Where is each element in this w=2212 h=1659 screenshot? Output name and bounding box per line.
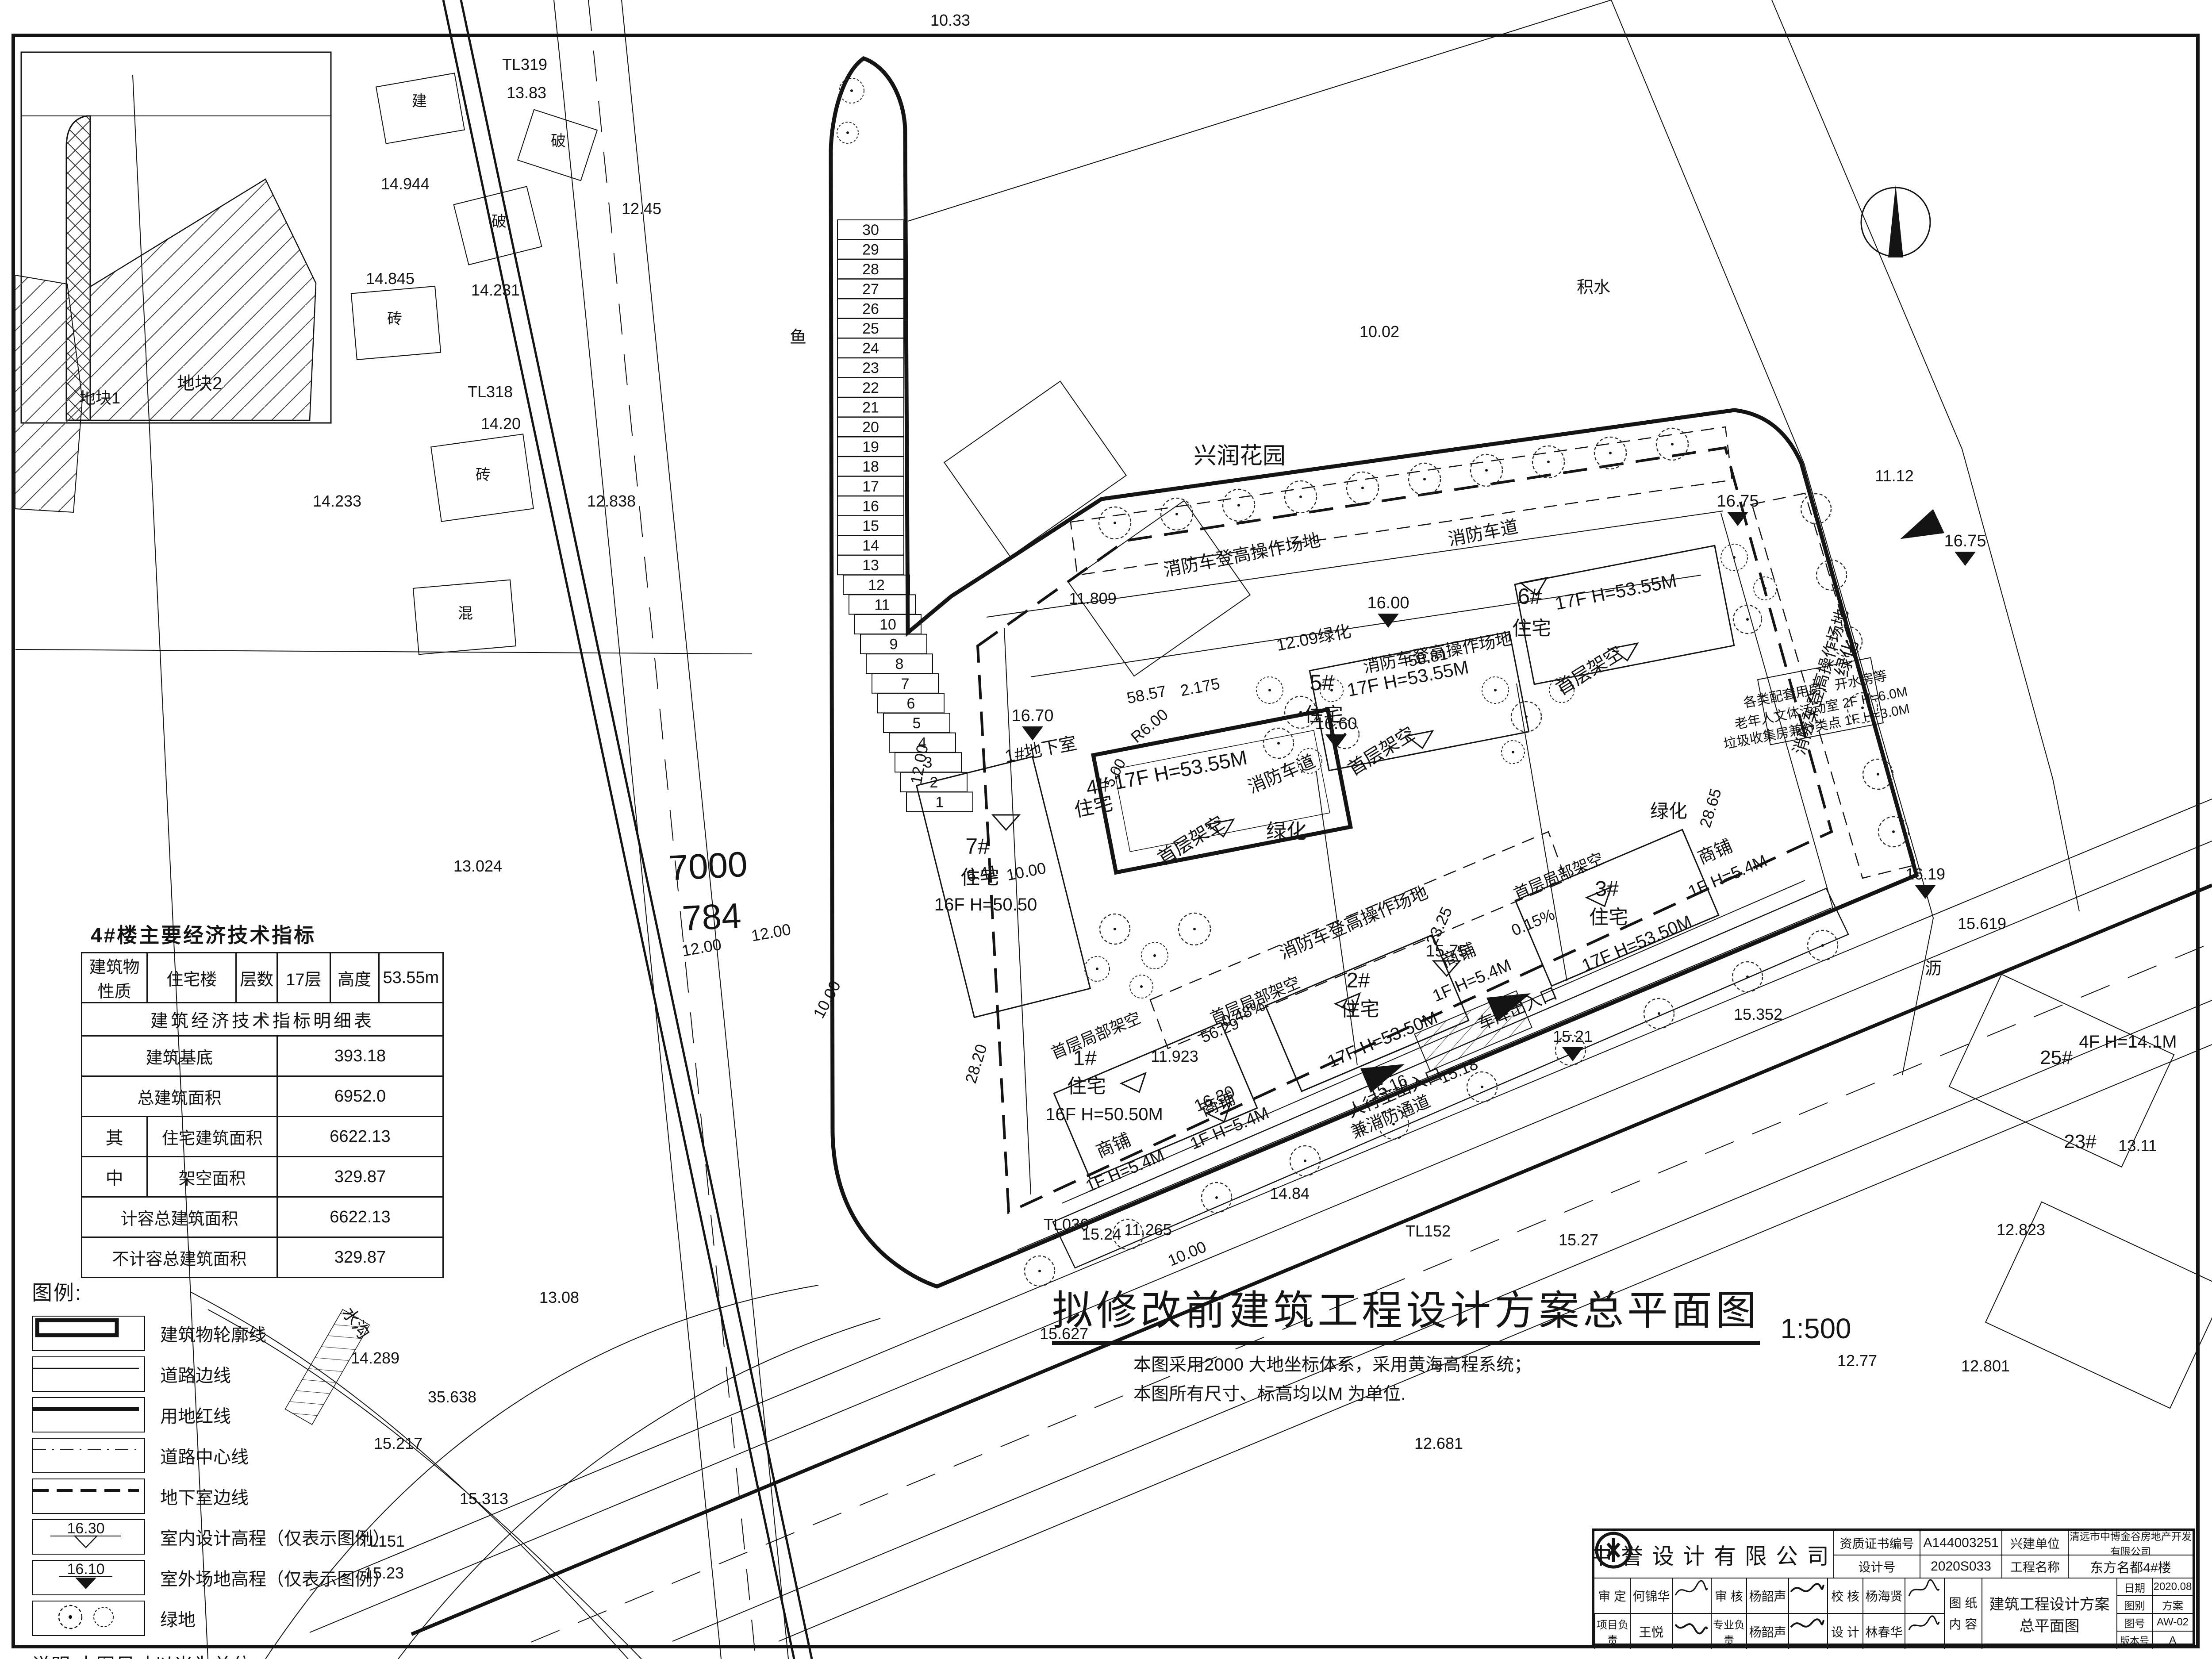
legend-item: 16.30 室内设计高程（仅表示图例） (32, 1517, 465, 1557)
svg-text:15.21: 15.21 (1553, 1027, 1593, 1045)
plan-label: 14.84 (1270, 1184, 1310, 1202)
plan-label: 15.21 (1553, 1027, 1593, 1061)
plan-label: 14.845 (366, 269, 415, 288)
basement-edge-swatch (32, 1479, 145, 1514)
plan-label: TL319 (502, 55, 547, 73)
legend-title: 图例: (32, 1277, 465, 1306)
existing-building (944, 381, 1126, 557)
pm-name: 王悦 (1630, 1613, 1672, 1649)
internal-roads (987, 427, 1916, 1250)
svg-text:16.19: 16.19 (1905, 865, 1945, 883)
ind-subheader: 建筑经济技术指标明细表 (82, 1003, 443, 1036)
building-outline-swatch (32, 1316, 145, 1351)
review-name: 杨韶声 (1746, 1578, 1788, 1613)
plan-label: 住宅 (1067, 1075, 1106, 1097)
parking-stall-number: 6 (907, 695, 915, 712)
existing-building (1068, 501, 1250, 676)
tree-center-dot (1746, 975, 1749, 978)
svg-text:16.30: 16.30 (67, 1520, 104, 1537)
plan-label: 15.27 (1559, 1231, 1598, 1249)
svg-text:23#: 23# (2064, 1131, 2097, 1152)
indicator-table: 建筑物性质 住宅楼 层数 17层 高度 53.55m 建筑经济技术指标明细表 建… (81, 952, 444, 1278)
outdoor-level-swatch: 16.10 (32, 1560, 145, 1595)
svg-text:12.77: 12.77 (1837, 1352, 1877, 1370)
tree-center-dot (1114, 522, 1116, 524)
svg-text:积水: 积水 (1577, 278, 1610, 297)
svg-text:14.20: 14.20 (481, 415, 521, 433)
tree-center-dot (1892, 830, 1895, 833)
svg-text:12.00: 12.00 (750, 920, 792, 945)
plan-label: 15.24 (1082, 1225, 1121, 1243)
plan-label: 13.83 (507, 84, 546, 102)
ind-row-value: 6622.13 (277, 1117, 443, 1157)
ind-row-label: 住宅建筑面积 (147, 1117, 277, 1157)
tree-center-dot (1153, 954, 1156, 957)
plan-label: 12.681 (1414, 1434, 1463, 1452)
plan-label: 住宅 (1072, 792, 1115, 821)
plan-label: 15.352 (1734, 1005, 1782, 1023)
plan-label: 13.11 (2118, 1137, 2157, 1155)
svg-text:TL318: TL318 (468, 383, 513, 401)
ind-row-value: 6952.0 (277, 1076, 443, 1117)
plan-label: 58.57 (1125, 682, 1167, 707)
plan-label: 4F H=14.1M (2079, 1032, 2177, 1052)
tree-center-dot (1746, 618, 1749, 621)
plan-label: 沥 (1925, 960, 1942, 978)
plan-label: 16F H=50.50 (934, 895, 1037, 914)
plan-label: 16.00 (1367, 594, 1409, 628)
content-value: 建筑工程设计方案总平面图 (1982, 1578, 2116, 1649)
svg-text:住宅: 住宅 (1067, 1075, 1106, 1097)
ind-h1: 建筑物性质 (82, 953, 147, 1003)
svg-text:混: 混 (458, 605, 473, 622)
tree-center-dot (1140, 985, 1143, 988)
plan-label: 消防车道 (1447, 517, 1520, 549)
svg-text:4F H=14.1M: 4F H=14.1M (2079, 1032, 2177, 1052)
parking-stall-number: 17 (862, 478, 879, 495)
svg-text:12.838: 12.838 (587, 492, 636, 510)
svg-text:10.02: 10.02 (1359, 323, 1399, 341)
plan-label: 6# (1517, 584, 1542, 609)
plan-label: 10.00 (810, 978, 844, 1022)
svg-text:消防车登高操作场地: 消防车登高操作场地 (1277, 883, 1431, 963)
svg-text:建: 建 (412, 93, 427, 110)
legend-note: 说明:本图尺寸以米为单位. (32, 1650, 465, 1659)
red-line-swatch (32, 1397, 145, 1432)
parking-stall-number: 10 (879, 616, 896, 633)
svg-text:16.00: 16.00 (1367, 594, 1409, 612)
type-value: 方案 (2152, 1595, 2193, 1613)
svg-text:7#: 7# (965, 834, 990, 859)
parking-stall-number: 23 (862, 360, 879, 376)
svg-text:消防车道: 消防车道 (1245, 752, 1318, 797)
plan-label: 12.823 (1997, 1221, 2045, 1239)
plan-label: 23# (2064, 1131, 2097, 1152)
svg-text:TL319: TL319 (502, 55, 547, 73)
plan-label: 16.75 (1944, 532, 1986, 566)
tree-center-dot (1547, 461, 1550, 463)
parking-stall-number: 18 (862, 458, 879, 475)
svg-text:2.175: 2.175 (1179, 674, 1221, 699)
svg-text:2#: 2# (1346, 969, 1370, 992)
date-value: 2020.08 (2152, 1578, 2193, 1595)
svg-text:14.845: 14.845 (366, 269, 415, 288)
svg-text:住宅: 住宅 (1072, 792, 1115, 821)
plan-label: 5# (1310, 670, 1334, 695)
ind-row-value: 393.18 (277, 1036, 443, 1076)
svg-text:11.809: 11.809 (1069, 589, 1116, 607)
plan-label: 1F H=5.4M (1686, 852, 1770, 902)
tree-center-dot (1481, 1086, 1483, 1088)
svg-text:首层架空: 首层架空 (1154, 812, 1228, 869)
svg-text:15.27: 15.27 (1559, 1231, 1598, 1249)
plan-note-2: 本图所有尺寸、标高均以M 为单位. (1133, 1379, 1406, 1405)
parking-stall-number: 16 (862, 498, 879, 515)
svg-text:破: 破 (551, 133, 566, 150)
parking-stall-number: 8 (895, 656, 904, 672)
legend-item: 16.10 室外场地高程（仅表示图例） (32, 1557, 465, 1598)
content-label: 图 纸 内 容 (1944, 1578, 1982, 1649)
tree-center-dot (1193, 928, 1196, 930)
tree-center-dot (1268, 689, 1271, 691)
tree-center-dot (1096, 968, 1098, 970)
ind-row-value: 6622.13 (277, 1197, 443, 1237)
ind-row-value: 329.87 (277, 1157, 443, 1197)
tree-center-dot (846, 131, 849, 134)
cert-label: 资质证书编号 (1833, 1531, 1920, 1555)
plan-label: 28.65 (1696, 786, 1725, 829)
pm-signature (1672, 1613, 1711, 1649)
review-label: 审 核 (1711, 1578, 1746, 1613)
svg-text:16F H=50.50M: 16F H=50.50M (1045, 1105, 1163, 1124)
lead-signature (1788, 1613, 1827, 1649)
tree-center-dot (1671, 443, 1674, 445)
tree-center-dot (1658, 1012, 1660, 1015)
plan-label: 住宅 (1589, 906, 1628, 928)
svg-text:15.619: 15.619 (1958, 914, 2006, 933)
design-no-label: 设计号 (1833, 1555, 1920, 1578)
plan-title-scale: 1:500 (1780, 1313, 1851, 1344)
version-value: A (2152, 1631, 2193, 1649)
svg-text:7000: 7000 (668, 844, 748, 887)
plan-label: 784 (681, 896, 742, 938)
legend-item: 绿地 (32, 1598, 465, 1639)
ind-h2: 层数 (236, 953, 277, 1003)
plan-label: 12.09绿化 (1275, 622, 1353, 655)
drawing-sheet: 地块1 地块2 (0, 0, 2212, 1659)
parking-stall-number: 2 (930, 774, 938, 791)
road-center-swatch (32, 1438, 145, 1473)
svg-text:6#: 6# (1517, 584, 1542, 609)
plan-label: 15.313 (460, 1490, 508, 1508)
svg-text:784: 784 (681, 896, 742, 938)
designer-label: 设 计 (1827, 1613, 1863, 1649)
tree-center-dot (1485, 469, 1488, 472)
svg-text:16.75: 16.75 (1944, 532, 1986, 550)
ind-v3: 53.55m (379, 953, 443, 1003)
svg-text:16.75: 16.75 (1717, 492, 1759, 511)
plan-label: 破 (492, 213, 507, 230)
svg-text:破: 破 (492, 213, 507, 230)
plan-title-text: 拟修改前建筑工程设计方案总平面图 (1052, 1278, 1760, 1345)
plan-label: 16.70 (1011, 707, 1053, 741)
plan-label: 23.25 (1422, 904, 1455, 948)
svg-text:12.00: 12.00 (680, 935, 723, 960)
legend-item: 道路边线 (32, 1354, 465, 1394)
ind-row-label: 建筑基底 (82, 1036, 277, 1076)
sheet-no-label: 图号 (2116, 1613, 2152, 1631)
plan-label: 10.33 (930, 11, 970, 29)
parking-stall-number: 12 (868, 577, 885, 594)
tree-center-dot (1299, 495, 1302, 498)
plan-label: 消防车道 (1245, 752, 1318, 797)
plan-label: 11.809 (1069, 589, 1116, 607)
svg-text:14.231: 14.231 (471, 281, 520, 299)
svg-text:绿化: 绿化 (1650, 801, 1687, 822)
ind-row-label: 架空面积 (147, 1157, 277, 1197)
plan-label: 绿化 (1266, 820, 1307, 843)
svg-text:16F H=50.50: 16F H=50.50 (934, 895, 1037, 914)
plan-label: 兴润花园 (1194, 443, 1286, 469)
ind-group: 中 (82, 1157, 147, 1197)
plan-label: 12.00 (907, 743, 932, 786)
plan-label: 绿化 (1650, 801, 1687, 822)
plan-label (993, 815, 1019, 830)
tree-center-dot (1304, 1160, 1306, 1162)
parcel2-label: 地块2 (177, 374, 222, 393)
plan-label: 16.19 (1905, 865, 1945, 899)
svg-text:住宅: 住宅 (1589, 906, 1628, 928)
svg-text:兴润花园: 兴润花园 (1194, 443, 1286, 469)
svg-text:11.265: 11.265 (1124, 1221, 1171, 1239)
check-name: 杨海贤 (1863, 1578, 1905, 1613)
tree-center-dot (1821, 944, 1824, 947)
plan-label: 12.00 (680, 935, 723, 960)
tree-center-dot (1830, 574, 1833, 576)
sheet-no-value: AW-02 (2152, 1613, 2193, 1631)
plan-label: 17F H=53.55M (1553, 570, 1678, 614)
svg-text:13.08: 13.08 (539, 1288, 579, 1306)
pm-label: 项目负责 (1594, 1613, 1630, 1649)
parking-stall-number: 11 (874, 596, 890, 613)
approve-name: 何锦华 (1630, 1578, 1672, 1613)
tree-center-dot (1175, 513, 1178, 515)
ind-v1: 住宅楼 (147, 953, 236, 1003)
plan-label: 砖 (476, 467, 491, 484)
plan-label: 14.944 (381, 175, 430, 193)
plan-label: 1#地下室 (1003, 733, 1079, 767)
company-logo-icon (1594, 1531, 1632, 1569)
plan-label: 16.60 (1315, 714, 1357, 749)
tree-center-dot (1299, 711, 1302, 714)
type-label: 图别 (2116, 1595, 2152, 1613)
parking-stall-number: 14 (862, 538, 879, 554)
plan-label: 0.15% (1509, 905, 1557, 940)
parking-stall-number: 24 (862, 340, 879, 357)
svg-text:23.25: 23.25 (1422, 904, 1455, 948)
parking-stall-number: 15 (862, 518, 879, 534)
ind-row-label: 总建筑面积 (82, 1076, 277, 1117)
date-label: 日期 (2116, 1578, 2152, 1595)
tree-center-dot (1609, 452, 1612, 454)
svg-text:14.944: 14.944 (381, 175, 430, 193)
indicator-table-title: 4#楼主要经济技术指标 (91, 919, 316, 949)
tree-center-dot (1764, 587, 1767, 590)
ind-row-label: 不计容总建筑面积 (82, 1237, 277, 1278)
svg-text:砖: 砖 (476, 467, 491, 484)
svg-text:0.15%: 0.15% (1509, 905, 1557, 940)
svg-text:砖: 砖 (387, 311, 402, 327)
plan-label: 14.233 (313, 492, 361, 510)
legend-item: 建筑物轮廓线 (32, 1313, 465, 1354)
cert-value: A144003251 (1920, 1531, 2001, 1555)
tree-center-dot (1512, 751, 1514, 753)
svg-text:15.313: 15.313 (460, 1490, 508, 1508)
parking-stall-number: 7 (901, 676, 910, 692)
check-signature (1905, 1578, 1944, 1613)
svg-text:沥: 沥 (1925, 960, 1942, 978)
plan-label: TL152 (1406, 1222, 1451, 1240)
building-6 (1515, 545, 1734, 684)
svg-text:消防车道: 消防车道 (1447, 517, 1520, 549)
plan-label: 11.12 (1875, 467, 1913, 485)
plan-label: 28.20 (961, 1042, 991, 1085)
indoor-level-swatch: 16.30 (32, 1519, 145, 1555)
svg-text:13.11: 13.11 (2118, 1137, 2157, 1155)
parking-stall-number: 20 (862, 419, 879, 436)
parking-stall-number: 1 (936, 794, 944, 810)
plan-label: 10.00 (1165, 1237, 1209, 1270)
parking-stall-number: 26 (862, 300, 879, 317)
tree-center-dot (1215, 1196, 1218, 1199)
svg-text:17F H=53.55M: 17F H=53.55M (1553, 570, 1678, 614)
plan-label: 2# (1346, 969, 1370, 992)
tree-center-dot (1237, 504, 1240, 507)
plan-label: 14.20 (481, 415, 521, 433)
plan-label: 12.00 (750, 920, 792, 945)
tree-center-dot (1494, 689, 1497, 691)
svg-text:12.823: 12.823 (1997, 1221, 2045, 1239)
svg-text:住宅: 住宅 (1512, 618, 1551, 639)
tree-center-dot (1361, 487, 1364, 489)
plan-label: 13.08 (539, 1288, 579, 1306)
svg-text:鱼: 鱼 (790, 328, 806, 347)
svg-text:16.10: 16.10 (67, 1561, 104, 1578)
plan-label (1121, 1073, 1152, 1097)
svg-text:28.65: 28.65 (1696, 786, 1725, 829)
plan-label: 7# (965, 834, 990, 859)
svg-text:58.57: 58.57 (1125, 682, 1167, 707)
parking-stall-number: 25 (862, 320, 879, 337)
road-edge-swatch (32, 1356, 145, 1392)
legend: 图例: 建筑物轮廓线 道路边线 用地红线 道路中心线 地下室边线 (32, 1277, 465, 1659)
plan-label: 10.00 (1005, 859, 1047, 884)
ind-row-value: 329.87 (277, 1237, 443, 1278)
plan-label: 11.923 (1151, 1047, 1198, 1065)
svg-text:14.233: 14.233 (313, 492, 361, 510)
plan-label: 12.77 (1837, 1352, 1877, 1370)
parking-stall-number: 22 (862, 380, 879, 396)
svg-text:12.00: 12.00 (907, 743, 932, 786)
svg-text:11.12: 11.12 (1875, 467, 1913, 485)
ind-row-label: 计容总建筑面积 (82, 1197, 277, 1237)
svg-text:12.681: 12.681 (1414, 1434, 1463, 1452)
svg-text:12.801: 12.801 (1961, 1357, 2010, 1375)
ind-v2: 17层 (277, 953, 330, 1003)
green-swatch (32, 1601, 145, 1636)
parking-stall-number: 9 (890, 636, 898, 653)
svg-text:16.60: 16.60 (1315, 714, 1357, 733)
plan-label: 25# (2040, 1047, 2073, 1068)
svg-text:15.352: 15.352 (1734, 1005, 1782, 1023)
parcel1-label: 地块1 (80, 389, 120, 407)
svg-text:15.24: 15.24 (1082, 1225, 1121, 1243)
tree-center-dot (1038, 1270, 1041, 1272)
design-no-value: 2020S033 (1920, 1555, 2001, 1578)
tree-center-dot (1815, 507, 1817, 510)
parking-stall-number: 28 (862, 261, 879, 278)
client-value: 清远市中博金谷房地产开发有限公司 (2068, 1531, 2193, 1555)
parking-stall-number: 5 (913, 715, 921, 732)
buildings (351, 73, 2212, 1408)
svg-text:10.00: 10.00 (810, 978, 844, 1022)
svg-text:13.024: 13.024 (453, 857, 502, 875)
svg-text:商铺: 商铺 (1695, 836, 1736, 868)
plan-label: 10.02 (1359, 323, 1399, 341)
legend-item: 道路中心线 (32, 1435, 465, 1476)
svg-text:12.09绿化: 12.09绿化 (1275, 622, 1353, 655)
plan-label: 破 (551, 133, 566, 150)
plan-label: 2.175 (1179, 674, 1221, 699)
plan-note-1: 本图采用2000 大地坐标体系，采用黄海高程系统； (1133, 1350, 1532, 1376)
plan-label: 商铺 (1695, 836, 1736, 868)
plan-label: 7000 (668, 844, 748, 887)
svg-text:14.84: 14.84 (1270, 1184, 1310, 1202)
parking-stall-number: 13 (862, 557, 879, 574)
project-label: 工程名称 (2001, 1555, 2068, 1578)
title-block: 中誉设计有限公司 资质证书编号 设计号 A144003251 2020S033 … (1592, 1528, 2195, 1646)
plan-label: 15.619 (1958, 914, 2006, 933)
plan-label: 11.265 (1124, 1221, 1171, 1239)
plan-label: 砖 (387, 311, 402, 327)
svg-text:5#: 5# (1310, 670, 1334, 695)
plan-label: TL318 (468, 383, 513, 401)
tree-center-dot (1733, 556, 1736, 559)
svg-text:10.00: 10.00 (1165, 1237, 1209, 1270)
legend-item: 用地红线 (32, 1394, 465, 1435)
svg-text:11.923: 11.923 (1151, 1047, 1198, 1065)
designer-signature (1905, 1613, 1944, 1649)
check-label: 校 核 (1827, 1578, 1863, 1613)
plan-label: 混 (458, 605, 473, 622)
svg-text:12.45: 12.45 (622, 200, 661, 218)
svg-text:1#地下室: 1#地下室 (1003, 733, 1079, 767)
svg-text:10.00: 10.00 (1005, 859, 1047, 884)
legend-item: 地下室边线 (32, 1476, 465, 1517)
tree-center-dot (850, 89, 853, 92)
tree-center-dot (1423, 478, 1426, 480)
svg-text:TL152: TL152 (1406, 1222, 1451, 1240)
ind-h3: 高度 (330, 953, 379, 1003)
approve-signature (1672, 1578, 1711, 1613)
parking-stall-number: 21 (862, 399, 879, 416)
plan-label: 消防车登高操作场地 (1277, 883, 1431, 963)
tree-center-dot (1114, 928, 1116, 930)
svg-text:13.83: 13.83 (507, 84, 546, 102)
plan-label: 12.45 (622, 200, 661, 218)
plan-title: 拟修改前建筑工程设计方案总平面图 1:500 (1052, 1278, 1851, 1345)
plan-label: 鱼 (790, 328, 806, 347)
